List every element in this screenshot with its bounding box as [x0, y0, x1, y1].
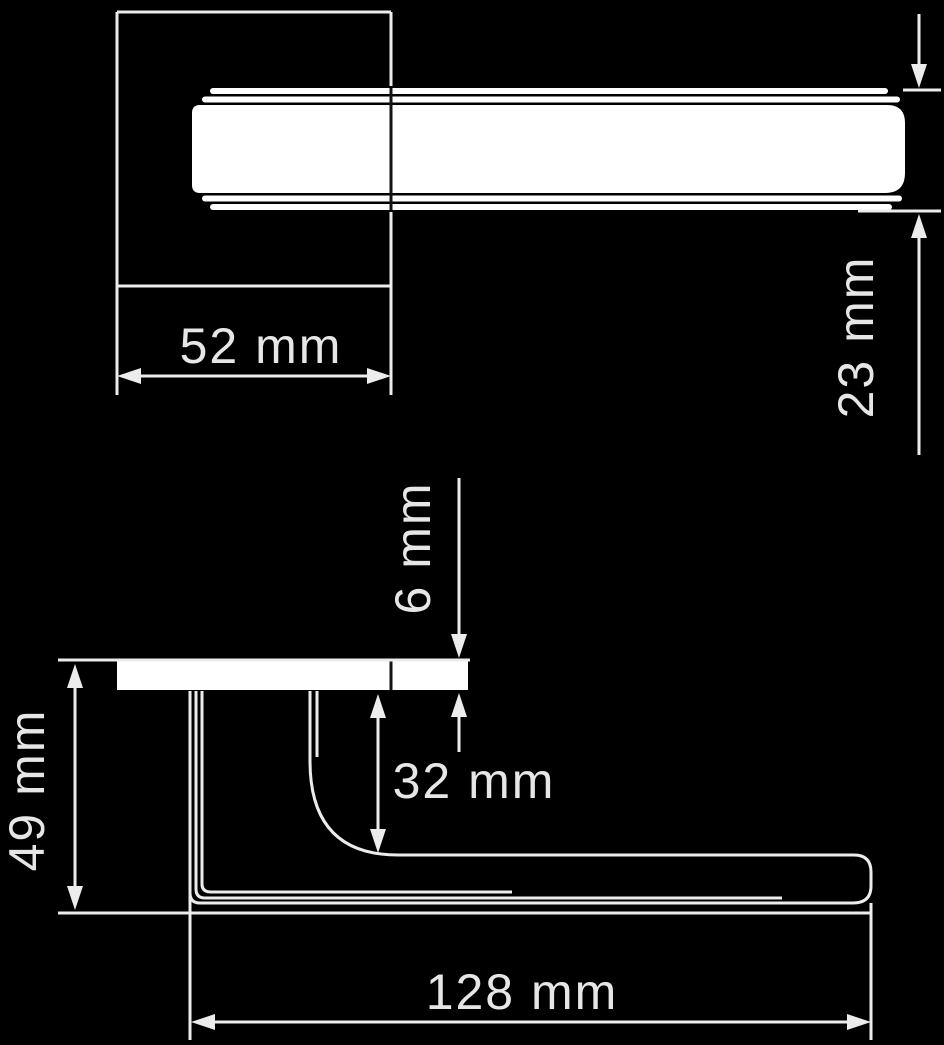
arrowhead-right-icon	[367, 368, 391, 384]
arrowhead-down-icon	[451, 634, 467, 658]
dimension-diagram: 52 mm 23 mm	[0, 0, 944, 1045]
dimension-grip-thickness: 23 mm	[828, 14, 941, 455]
side-view: 6 mm 32 mm 49 mm 128 mm	[0, 478, 872, 1040]
top-view: 52 mm 23 mm	[117, 12, 941, 455]
arrowhead-left-icon	[191, 1014, 215, 1030]
dimension-neck-clearance: 32 mm	[370, 694, 555, 853]
arrowhead-down-icon	[67, 886, 83, 910]
grip-body	[192, 105, 905, 193]
dimension-label-49mm: 49 mm	[0, 709, 55, 872]
grip-contour-strip-top-outer	[210, 88, 888, 94]
grip-contour-strip-top-inner	[202, 97, 900, 103]
grip-contour-strip-bottom-outer	[210, 204, 892, 210]
dimension-label-52mm: 52 mm	[180, 318, 343, 374]
arrowhead-left-icon	[117, 368, 141, 384]
arrowhead-up-icon	[911, 214, 927, 238]
dimension-label-128mm: 128 mm	[426, 964, 619, 1020]
arrowhead-up-icon	[451, 693, 467, 717]
dimension-label-32mm: 32 mm	[393, 753, 556, 809]
arrowhead-up-icon	[370, 694, 386, 718]
handle-drawing-canvas: 52 mm 23 mm	[0, 0, 944, 1045]
grip-contour-strip-bottom-inner	[202, 196, 902, 202]
dimension-rose-depth: 6 mm	[385, 478, 467, 752]
dimension-projection: 49 mm	[0, 664, 83, 910]
dimension-label-6mm: 6 mm	[385, 482, 441, 615]
dimension-lever-length: 128 mm	[191, 903, 871, 1040]
dimension-label-23mm: 23 mm	[828, 256, 884, 419]
arrowhead-up-icon	[67, 664, 83, 688]
arrowhead-down-icon	[370, 829, 386, 853]
grip-top-view	[192, 88, 905, 210]
rose-plate-bar	[117, 662, 468, 691]
rose-side-profile	[117, 662, 468, 691]
dimension-rose-width: 52 mm	[117, 318, 391, 384]
arrowhead-right-icon	[847, 1014, 871, 1030]
arrowhead-down-icon	[911, 64, 927, 88]
